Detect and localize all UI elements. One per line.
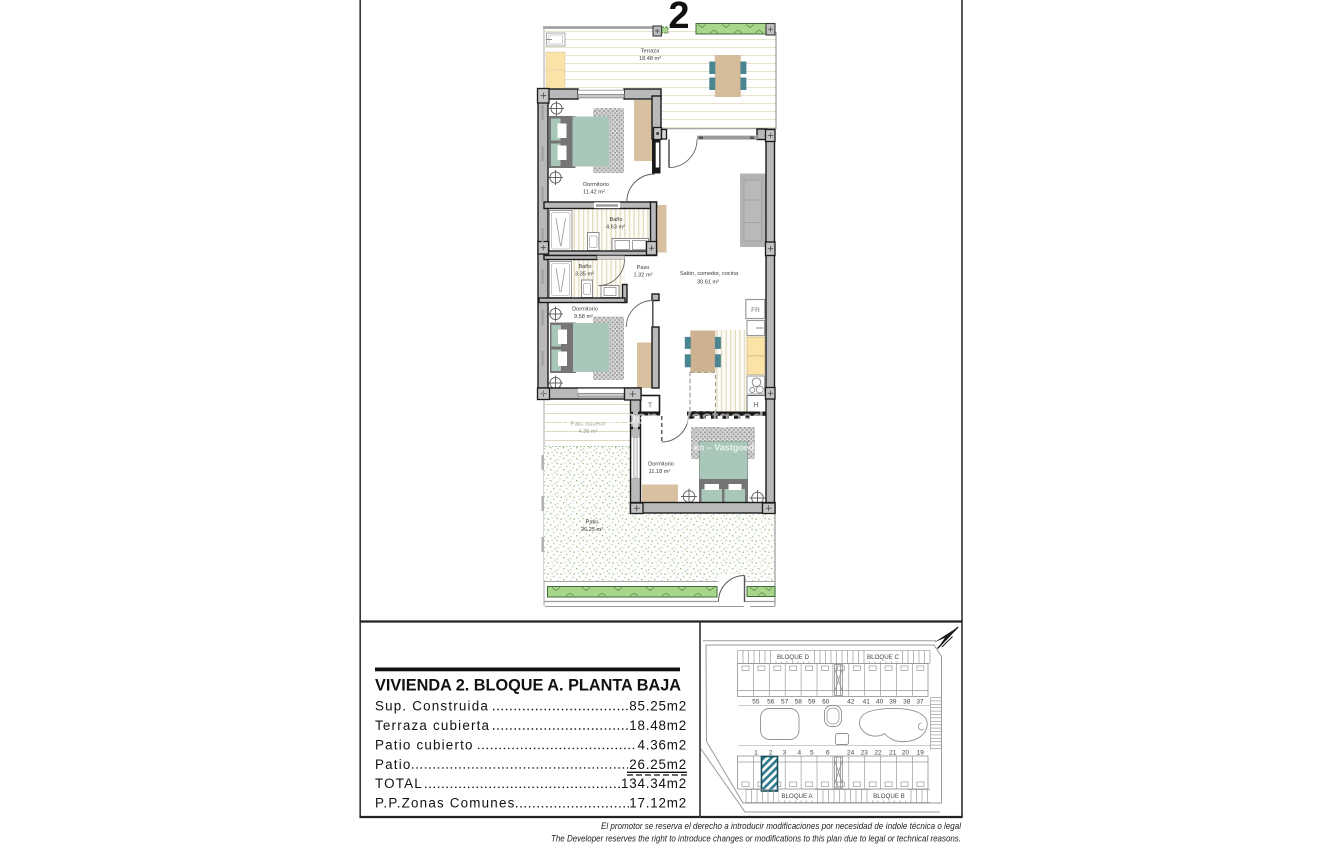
svg-text:4.36m2: 4.36m2 bbox=[638, 737, 687, 752]
svg-text:Baño: Baño bbox=[578, 264, 591, 270]
svg-text:BLOQUE C: BLOQUE C bbox=[867, 654, 900, 661]
svg-text:6: 6 bbox=[826, 750, 830, 757]
svg-text:meergroen – Vastgoed: meergroen – Vastgoed bbox=[560, 408, 764, 429]
svg-text:3: 3 bbox=[783, 750, 787, 757]
svg-text:38: 38 bbox=[903, 699, 911, 706]
svg-text:26.25 m²: 26.25 m² bbox=[581, 527, 603, 533]
svg-text:The Developer reserves the rig: The Developer reserves the right to intr… bbox=[551, 834, 961, 845]
svg-text:21: 21 bbox=[889, 750, 897, 757]
svg-text:4.36 m²: 4.36 m² bbox=[579, 429, 598, 435]
svg-text:en – Vastgoed: en – Vastgoed bbox=[694, 443, 755, 453]
svg-text:Sup. Construida: Sup. Construida bbox=[375, 698, 489, 713]
svg-text:4.63 m²: 4.63 m² bbox=[606, 225, 625, 231]
svg-text:85.25m2: 85.25m2 bbox=[629, 698, 687, 713]
svg-text:1: 1 bbox=[754, 750, 758, 757]
svg-text:FR: FR bbox=[751, 307, 760, 314]
svg-text:40: 40 bbox=[876, 699, 884, 706]
svg-text:BLOQUE D: BLOQUE D bbox=[777, 654, 810, 661]
svg-text:42: 42 bbox=[847, 699, 855, 706]
svg-text:1.32 m²: 1.32 m² bbox=[634, 273, 653, 279]
svg-text:Terraza: Terraza bbox=[641, 49, 661, 55]
svg-text:57: 57 bbox=[781, 699, 789, 706]
svg-text:Dormitorio: Dormitorio bbox=[583, 182, 609, 188]
svg-text:Patio cubierto: Patio cubierto bbox=[375, 737, 474, 752]
svg-text:2: 2 bbox=[769, 750, 773, 757]
svg-text:19: 19 bbox=[917, 750, 925, 757]
svg-text:22: 22 bbox=[874, 750, 882, 757]
svg-text:Paso: Paso bbox=[637, 265, 650, 271]
svg-text:9.58 m²: 9.58 m² bbox=[574, 314, 593, 320]
svg-text:Salón, comedor, cocina: Salón, comedor, cocina bbox=[680, 271, 739, 277]
svg-text:17.12m2: 17.12m2 bbox=[629, 796, 687, 811]
svg-text:60: 60 bbox=[822, 699, 830, 706]
svg-text:VIVIENDA 2. BLOQUE A. PLANTA B: VIVIENDA 2. BLOQUE A. PLANTA BAJA bbox=[375, 677, 681, 695]
svg-text:4: 4 bbox=[797, 750, 801, 757]
svg-text:Dormitorio: Dormitorio bbox=[648, 462, 674, 468]
svg-text:18.48m2: 18.48m2 bbox=[629, 718, 687, 733]
svg-text:5: 5 bbox=[810, 750, 814, 757]
svg-text:BLOQUE A: BLOQUE A bbox=[781, 793, 813, 800]
svg-text:Patio: Patio bbox=[586, 520, 599, 526]
svg-text:BLOQUE B: BLOQUE B bbox=[873, 793, 905, 800]
svg-text:30.61 m²: 30.61 m² bbox=[697, 280, 719, 286]
svg-text:P.P.Zonas Comunes: P.P.Zonas Comunes bbox=[375, 796, 516, 811]
svg-text:3.35 m²: 3.35 m² bbox=[575, 272, 594, 278]
svg-text:18.48 m²: 18.48 m² bbox=[639, 56, 661, 62]
svg-text:56: 56 bbox=[767, 699, 775, 706]
svg-text:37: 37 bbox=[916, 699, 924, 706]
svg-text:23: 23 bbox=[861, 750, 869, 757]
svg-text:11.18 m²: 11.18 m² bbox=[649, 469, 671, 475]
svg-text:24: 24 bbox=[847, 750, 855, 757]
svg-text:Dormitorio: Dormitorio bbox=[572, 307, 598, 313]
svg-text:Terraza cubierta: Terraza cubierta bbox=[375, 718, 490, 733]
svg-text:Baño: Baño bbox=[609, 217, 622, 223]
svg-text:55: 55 bbox=[752, 699, 760, 706]
svg-text:Patio: Patio bbox=[375, 757, 412, 772]
svg-text:11.42 m²: 11.42 m² bbox=[583, 190, 605, 196]
svg-text:TOTAL: TOTAL bbox=[375, 776, 423, 791]
svg-text:26.25m2: 26.25m2 bbox=[629, 757, 687, 772]
svg-text:59: 59 bbox=[808, 699, 816, 706]
svg-text:39: 39 bbox=[889, 699, 897, 706]
svg-text:El promotor se reserva el dere: El promotor se reserva el derecho a intr… bbox=[601, 821, 962, 832]
svg-text:134.34m2: 134.34m2 bbox=[621, 776, 687, 791]
svg-text:2: 2 bbox=[668, 0, 689, 37]
svg-text:58: 58 bbox=[795, 699, 803, 706]
svg-text:41: 41 bbox=[863, 699, 871, 706]
svg-text:20: 20 bbox=[902, 750, 910, 757]
